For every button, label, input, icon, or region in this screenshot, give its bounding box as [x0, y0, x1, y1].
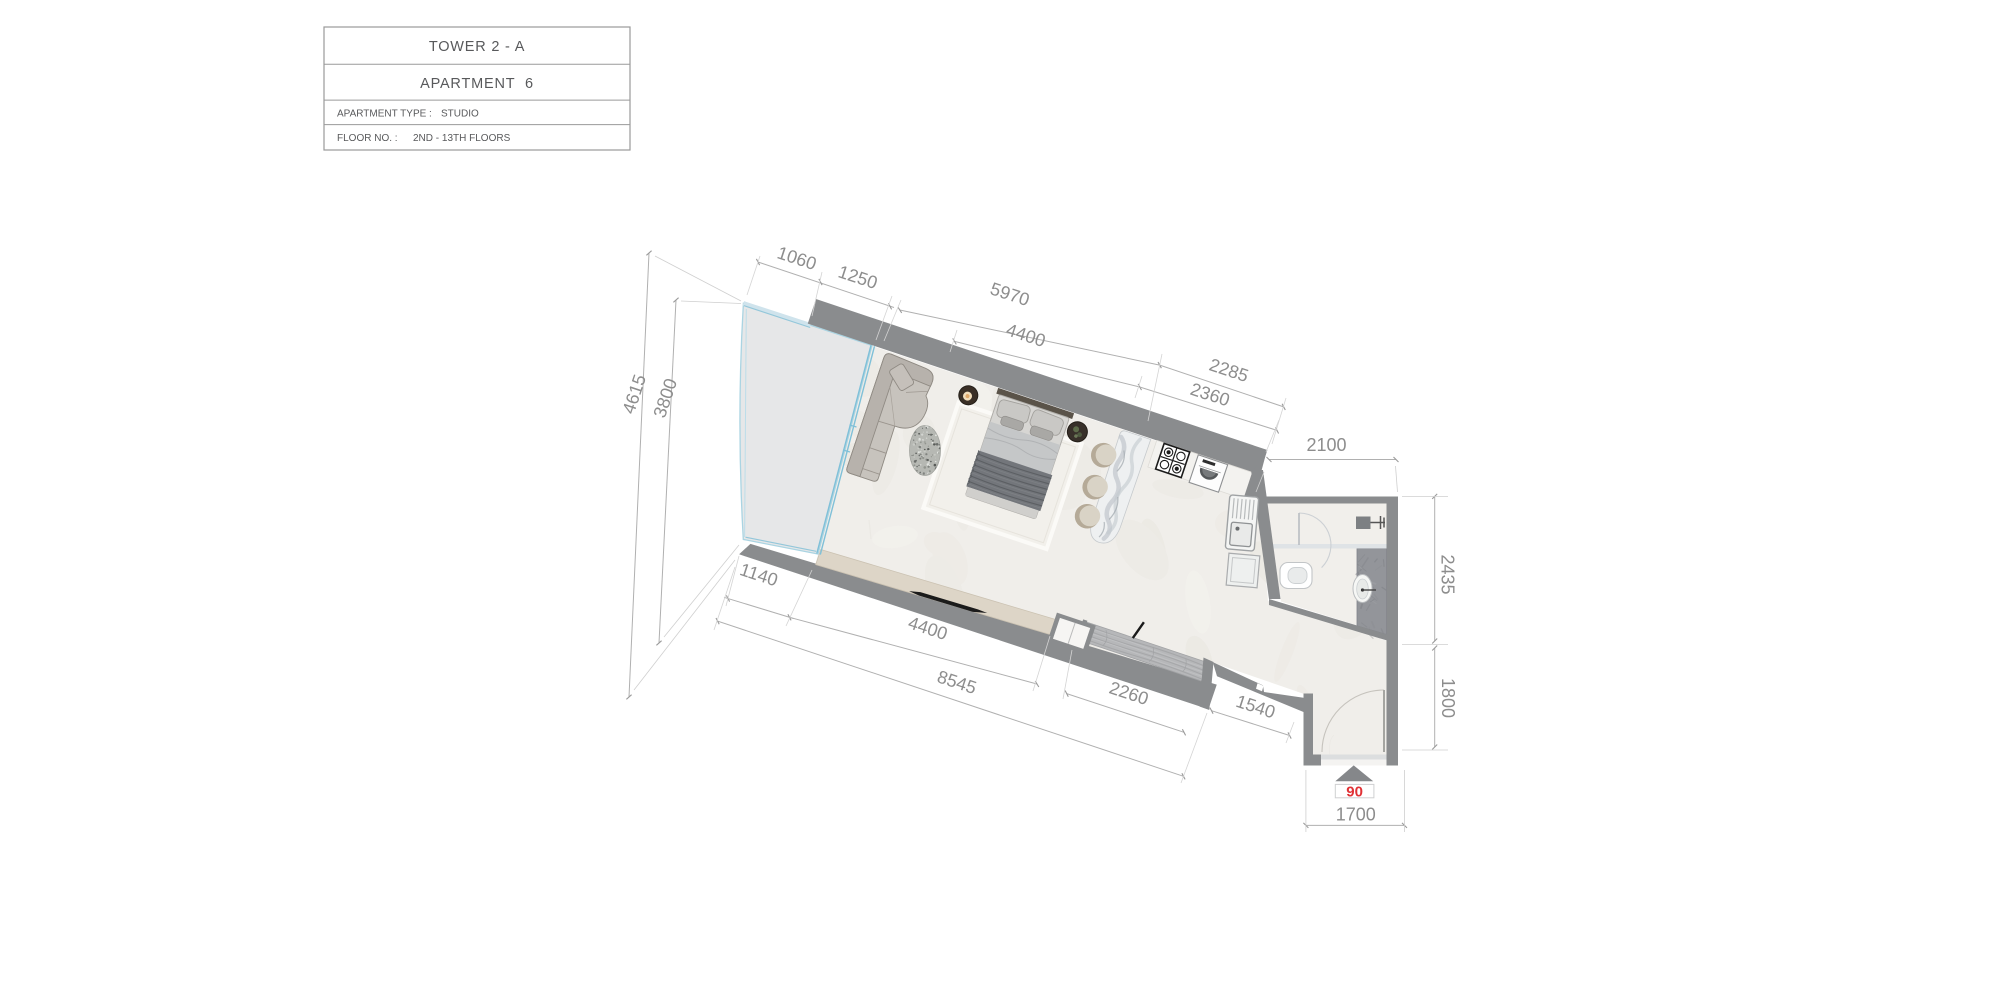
svg-text:2285: 2285 — [1207, 355, 1251, 386]
svg-text:2100: 2100 — [1306, 435, 1346, 455]
svg-text:1700: 1700 — [1336, 805, 1376, 825]
svg-text:4400: 4400 — [1004, 320, 1048, 351]
svg-text:TOWER 2 - A: TOWER 2 - A — [429, 39, 525, 55]
svg-text:3800: 3800 — [649, 376, 681, 420]
svg-text:90: 90 — [1346, 783, 1363, 800]
svg-text:5970: 5970 — [988, 279, 1032, 310]
svg-text:1060: 1060 — [775, 243, 819, 274]
svg-text:1800: 1800 — [1438, 678, 1458, 718]
svg-text:APARTMENT TYPE :: APARTMENT TYPE : — [337, 109, 432, 120]
svg-text:4615: 4615 — [618, 372, 650, 416]
svg-text:APARTMENT 6: APARTMENT 6 — [420, 76, 534, 92]
svg-text:2360: 2360 — [1188, 379, 1232, 410]
svg-text:1250: 1250 — [836, 262, 880, 293]
svg-text:FLOOR NO. :: FLOOR NO. : — [337, 133, 398, 144]
svg-text:8545: 8545 — [935, 667, 979, 698]
svg-text:2ND - 13TH FLOORS: 2ND - 13TH FLOORS — [413, 133, 511, 144]
svg-text:STUDIO: STUDIO — [441, 109, 479, 120]
svg-text:2435: 2435 — [1438, 554, 1458, 594]
